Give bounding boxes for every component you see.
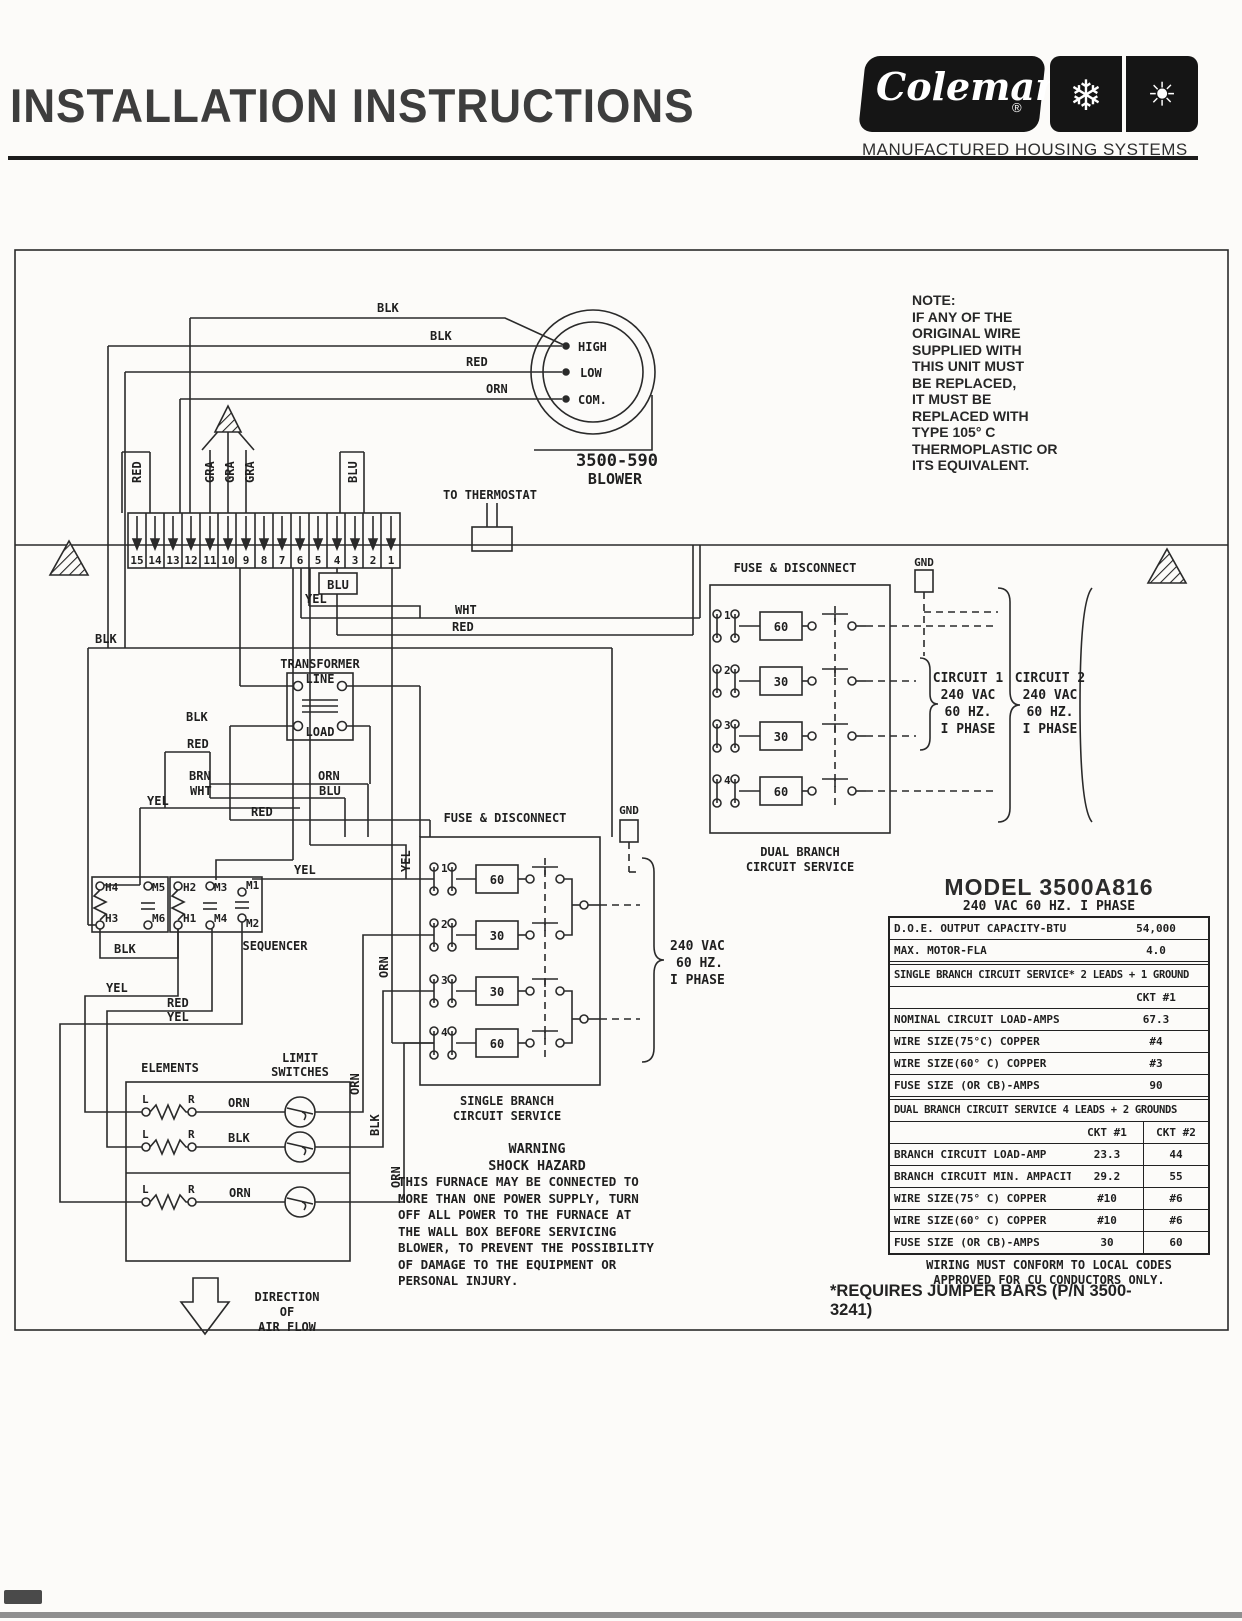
hazard-triangle-left — [50, 541, 88, 575]
wire-label: RED — [251, 805, 273, 819]
svg-text:1: 1 — [441, 862, 448, 875]
registered-mark: ® — [1012, 100, 1022, 115]
airflow-label: DIRECTION OF AIR FLOW — [232, 1290, 342, 1335]
transformer-title: TRANSFORMER — [280, 657, 360, 671]
wire-label: YEL — [167, 1010, 189, 1024]
gnd-lug — [915, 570, 933, 592]
svg-text:I PHASE: I PHASE — [670, 973, 725, 988]
svg-text:CIRCUIT SERVICE: CIRCUIT SERVICE — [453, 1109, 561, 1123]
svg-text:240 VAC: 240 VAC — [670, 939, 725, 954]
svg-text:6: 6 — [297, 554, 304, 567]
svg-text:3: 3 — [441, 974, 448, 987]
svg-text:30: 30 — [774, 675, 788, 689]
svg-text:2: 2 — [441, 918, 448, 931]
table-row: WIRE SIZE(60° C) COPPER#3 — [890, 1052, 1208, 1074]
svg-text:L: L — [142, 1128, 149, 1141]
wire-label: BLU — [319, 784, 341, 798]
svg-text:M5: M5 — [152, 881, 165, 894]
coleman-logo: Coleman ® ❄ ☀ MANUFACTURED HOUSING SYSTE… — [862, 52, 1202, 162]
snowflake-icon: ❄ — [1050, 56, 1122, 132]
svg-text:SWITCHES: SWITCHES — [271, 1065, 329, 1079]
wire-label: ORN — [228, 1096, 250, 1110]
svg-text:60: 60 — [490, 1037, 504, 1051]
brand-subtitle: MANUFACTURED HOUSING SYSTEMS — [862, 140, 1188, 160]
svg-text:14: 14 — [148, 554, 162, 567]
svg-text:CIRCUIT 2: CIRCUIT 2 — [1015, 671, 1085, 686]
svg-text:R: R — [188, 1093, 195, 1106]
svg-text:2: 2 — [370, 554, 377, 567]
scanned-page: HIGH LOW COM. 3500-590 BLOWER TO THERMOS… — [0, 0, 1242, 1621]
strip-arrows — [133, 516, 395, 549]
terminal-numbers: 1514 1312 1110 98 76 54 32 1 — [130, 554, 394, 567]
wire-label: ORN — [348, 1073, 362, 1095]
limit-switch-icon — [285, 1187, 315, 1217]
svg-text:11: 11 — [203, 554, 217, 567]
svg-text:13: 13 — [166, 554, 179, 567]
svg-text:60 HZ.: 60 HZ. — [1027, 705, 1074, 720]
wire-label: GRA — [223, 461, 237, 483]
brace-240vac — [642, 858, 664, 1062]
svg-text:60 HZ.: 60 HZ. — [945, 705, 992, 720]
svg-text:3: 3 — [724, 719, 731, 732]
wire-label: BRN — [189, 769, 211, 783]
svg-text:L: L — [142, 1093, 149, 1106]
table-footer: WIRING MUST CONFORM TO LOCAL CODES APPRO… — [888, 1258, 1210, 1288]
blower-label: BLOWER — [588, 470, 643, 488]
table-row: MAX. MOTOR-FLA4.0 — [890, 939, 1208, 961]
svg-text:30: 30 — [774, 730, 788, 744]
table-row: WIRE SIZE(75° C) COPPER#10#6 — [890, 1187, 1208, 1209]
svg-text:I PHASE: I PHASE — [1023, 722, 1078, 737]
table-section-header: SINGLE BRANCH CIRCUIT SERVICE* 2 LEADS +… — [890, 961, 1208, 986]
thermostat-connector — [472, 503, 512, 551]
blower-terminal-com: COM. — [578, 393, 607, 407]
table-section-header: DUAL BRANCH CIRCUIT SERVICE 4 LEADS + 2 … — [890, 1096, 1208, 1121]
single-branch-row-numbers: 12 34 — [441, 862, 448, 1039]
wire-label: YEL — [399, 850, 413, 872]
svg-text:12: 12 — [184, 554, 197, 567]
svg-text:9: 9 — [243, 554, 250, 567]
blower-symbol — [531, 310, 655, 450]
wire-label: WHT — [455, 603, 477, 617]
gnd-label: GND — [914, 556, 934, 569]
wire-label: ORN — [486, 382, 508, 396]
single-branch-disconnect — [420, 820, 664, 1085]
svg-text:M4: M4 — [214, 912, 228, 925]
dual-branch-caption: DUAL BRANCH — [760, 845, 839, 859]
model-subtitle: 240 VAC 60 HZ. I PHASE — [888, 899, 1210, 914]
svg-text:H4: H4 — [105, 881, 119, 894]
table-row: BRANCH CIRCUIT MIN. AMPACITY29.255 — [890, 1165, 1208, 1187]
page-title: INSTALLATION INSTRUCTIONS — [10, 78, 695, 133]
svg-text:60: 60 — [490, 873, 504, 887]
wire-label: BLU — [327, 578, 349, 592]
svg-text:4: 4 — [441, 1026, 448, 1039]
wire-label: ORN — [318, 769, 340, 783]
thermostat-label: TO THERMOSTAT — [443, 488, 537, 502]
sequencer-terminals: H4M5 H3M6 H2M3 H1M4 M1M2 — [105, 879, 260, 930]
svg-text:4: 4 — [724, 774, 731, 787]
svg-text:3: 3 — [352, 554, 359, 567]
svg-text:L: L — [142, 1183, 149, 1196]
table-row: BRANCH CIRCUIT LOAD-AMP23.344 — [890, 1143, 1208, 1165]
svg-text:H1: H1 — [183, 912, 197, 925]
svg-text:5: 5 — [315, 554, 322, 567]
svg-text:60: 60 — [774, 620, 788, 634]
svg-text:H3: H3 — [105, 912, 118, 925]
wire-label: ORN — [377, 956, 391, 978]
svg-text:R: R — [188, 1128, 195, 1141]
limit-switches-title: LIMIT — [282, 1051, 318, 1065]
svg-text:1: 1 — [724, 609, 731, 622]
hazard-triangle-small — [215, 406, 241, 432]
svg-text:CIRCUIT 1: CIRCUIT 1 — [933, 671, 1004, 686]
limit-switch-icon — [285, 1097, 315, 1127]
table-row: FUSE SIZE (OR CB)-AMPS90 — [890, 1074, 1208, 1096]
model-title: MODEL 3500A816 — [888, 874, 1210, 901]
svg-text:60 HZ.: 60 HZ. — [676, 956, 723, 971]
svg-text:8: 8 — [261, 554, 268, 567]
svg-text:15: 15 — [130, 554, 143, 567]
gnd-label: GND — [619, 804, 639, 817]
airflow-arrow-icon — [181, 1278, 229, 1334]
wire-label: RED — [187, 737, 209, 751]
single-branch-rating: 240 VAC 60 HZ. I PHASE — [670, 939, 725, 988]
table-row: FUSE SIZE (OR CB)-AMPS3060 — [890, 1231, 1208, 1253]
wiring-diagram: HIGH LOW COM. 3500-590 BLOWER TO THERMOS… — [0, 0, 1242, 1621]
limit-switch-icon — [285, 1132, 315, 1162]
sun-icon: ☀ — [1126, 56, 1198, 132]
warning-subtitle: SHOCK HAZARD — [398, 1158, 676, 1175]
wire-label: GRA — [243, 461, 257, 483]
svg-text:30: 30 — [490, 929, 504, 943]
wire-label: RED — [167, 996, 189, 1010]
svg-text:7: 7 — [279, 554, 286, 567]
single-branch-title: FUSE & DISCONNECT — [444, 811, 567, 825]
dual-branch-title: FUSE & DISCONNECT — [734, 561, 857, 575]
brace-right-edge — [1080, 588, 1092, 822]
wire-label: WHT — [190, 784, 212, 798]
svg-text:2: 2 — [724, 664, 731, 677]
table-row: WIRE SIZE(60° C) COPPER#10#6 — [890, 1209, 1208, 1231]
gnd-lug — [620, 820, 638, 842]
blower-terminal-high: HIGH — [578, 340, 607, 354]
table-row: D.O.E. OUTPUT CAPACITY-BTU54,000 — [890, 918, 1208, 939]
svg-text:240 VAC: 240 VAC — [1023, 688, 1078, 703]
replacement-wire-note: NOTE: IF ANY OF THE ORIGINAL WIRE SUPPLI… — [912, 292, 1082, 474]
svg-text:1: 1 — [388, 554, 395, 567]
svg-text:CIRCUIT SERVICE: CIRCUIT SERVICE — [746, 860, 854, 874]
table-row: CKT #1CKT #2 — [890, 1121, 1208, 1143]
wire-label: BLK — [114, 942, 136, 956]
wire-label: YEL — [305, 592, 327, 606]
wire-label: BLK — [228, 1131, 250, 1145]
svg-text:I PHASE: I PHASE — [941, 722, 996, 737]
spec-table: MODEL 3500A816 240 VAC 60 HZ. I PHASE D.… — [888, 874, 1210, 1288]
dual-branch-fuse-values: 6030 3060 — [774, 620, 788, 799]
svg-text:M1: M1 — [246, 879, 260, 892]
circuit2-rating: CIRCUIT 2240 VAC 60 HZ.I PHASE — [1015, 671, 1085, 737]
sequencer-title: SEQUENCER — [242, 939, 308, 953]
table-row: NOMINAL CIRCUIT LOAD-AMPS67.3 — [890, 1008, 1208, 1030]
svg-text:4: 4 — [334, 554, 341, 567]
wire-label: ORN — [229, 1186, 251, 1200]
table-row: CKT #1 — [890, 986, 1208, 1008]
svg-text:H2: H2 — [183, 881, 196, 894]
wire-label: BLK — [95, 632, 117, 646]
svg-text:10: 10 — [221, 554, 234, 567]
transformer-load: LOAD — [306, 725, 335, 739]
single-branch-caption: SINGLE BRANCH — [460, 1094, 554, 1108]
brace-circuit2 — [998, 588, 1020, 822]
wire-label: YEL — [147, 794, 169, 808]
warning-block: WARNING SHOCK HAZARD THIS FURNACE MAY BE… — [398, 1141, 676, 1290]
blower-model: 3500-590 — [576, 451, 658, 471]
circuit1-rating: CIRCUIT 1240 VAC 60 HZ.I PHASE — [933, 671, 1004, 737]
brand-name: Coleman — [876, 64, 1063, 109]
wire-label: BLK — [186, 710, 208, 724]
svg-text:R: R — [188, 1183, 195, 1196]
wire-label: BLU — [346, 461, 360, 483]
wire-label: BLK — [368, 1114, 382, 1136]
table-row: WIRE SIZE(75°C) COPPER#4 — [890, 1030, 1208, 1052]
svg-text:M6: M6 — [152, 912, 166, 925]
warning-title: WARNING — [398, 1141, 676, 1158]
wire-label: BLK — [377, 301, 399, 315]
wire-label: GRA — [203, 461, 217, 483]
wire-label: RED — [452, 620, 474, 634]
wire-label: RED — [130, 461, 144, 483]
svg-text:240 VAC: 240 VAC — [941, 688, 996, 703]
elements-title: ELEMENTS — [141, 1061, 199, 1075]
blower-terminal-low: LOW — [580, 366, 602, 380]
wire-label: YEL — [106, 981, 128, 995]
wire-label: YEL — [294, 863, 316, 877]
dual-branch-row-numbers: 12 34 — [724, 609, 731, 787]
svg-text:30: 30 — [490, 985, 504, 999]
warning-body: THIS FURNACE MAY BE CONNECTED TO MORE TH… — [398, 1174, 676, 1290]
svg-text:M3: M3 — [214, 881, 227, 894]
wire-label: RED — [466, 355, 488, 369]
svg-text:M2: M2 — [246, 917, 259, 930]
svg-text:60: 60 — [774, 785, 788, 799]
wire-label: BLK — [430, 329, 452, 343]
transformer-line: LINE — [306, 672, 335, 686]
hazard-triangle-right — [1148, 549, 1186, 583]
single-branch-fuse-values: 6030 3060 — [490, 873, 504, 1051]
scan-smudge — [4, 1590, 42, 1604]
scan-edge — [0, 1612, 1242, 1618]
